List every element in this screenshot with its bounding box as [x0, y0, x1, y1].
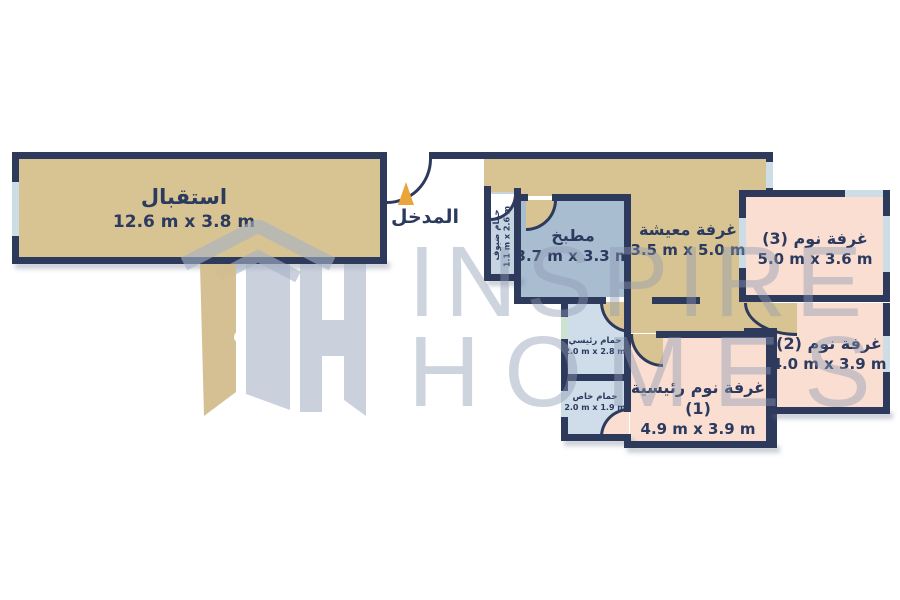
- room-name: غرفة نوم رئيسية (1): [628, 378, 768, 420]
- room-dims: 3.7 m x 3.3 m: [510, 247, 636, 267]
- window-segment: [845, 190, 885, 197]
- room-name: حمام خاص: [563, 392, 627, 403]
- room-dims: 12.6 m x 3.8 m: [84, 211, 284, 233]
- wall-segment: [766, 152, 773, 162]
- room-name: غرفة نوم (3): [745, 229, 885, 250]
- room-label-living: غرفة معيشة 3.5 m x 5.0 m: [626, 220, 750, 260]
- wall-segment: [739, 268, 746, 297]
- room-label-guest-bath-name: حمام ضيوف: [492, 193, 502, 277]
- room-label-bedroom2: غرفة نوم (2) 4.0 m x 3.9 m: [770, 334, 888, 374]
- room-label-master-bedroom: غرفة نوم رئيسية (1) 4.9 m x 3.9 m: [628, 378, 768, 439]
- room-label-master-bath: حمام رئيسي 2.0 m x 2.8 m: [563, 336, 627, 357]
- room-dims: 1.1 m x 2.6 m: [503, 206, 512, 267]
- room-label-private-bath: حمام خاص 2.0 m x 1.9 m: [563, 392, 627, 413]
- wall-segment: [12, 236, 19, 264]
- wall-segment: [624, 441, 777, 448]
- room-label-bedroom3: غرفة نوم (3) 5.0 m x 3.6 m: [745, 229, 885, 269]
- wall-segment: [739, 295, 890, 302]
- room-dims: 4.9 m x 3.9 m: [628, 420, 768, 440]
- entrance-arrow-icon: [398, 182, 414, 205]
- wall-segment: [429, 152, 772, 159]
- wall-segment: [652, 297, 700, 304]
- room-dims: 4.0 m x 3.9 m: [770, 355, 888, 375]
- wall-segment: [12, 152, 19, 182]
- room-name: غرفة معيشة: [626, 220, 750, 241]
- wall-segment: [552, 194, 630, 201]
- entrance-label: المدخل: [384, 206, 466, 228]
- room-name: حمام رئيسي: [563, 336, 627, 347]
- room-dims: 3.5 m x 5.0 m: [626, 241, 750, 261]
- wall-segment: [561, 374, 627, 381]
- room-name: مطبخ: [510, 226, 636, 247]
- room-dims: 5.0 m x 3.6 m: [745, 250, 885, 270]
- window-segment: [766, 162, 773, 188]
- wall-segment: [561, 434, 631, 441]
- room-name: حمام ضيوف: [492, 209, 502, 260]
- wall-segment: [770, 407, 890, 414]
- room-dims: 2.0 m x 2.8 m: [563, 347, 627, 357]
- wall-segment: [514, 194, 528, 201]
- room-name: استقبال: [84, 184, 284, 211]
- room-dims: 2.0 m x 1.9 m: [563, 403, 627, 413]
- room-label-guest-bath-dims: 1.1 m x 2.6 m: [503, 195, 512, 279]
- window-segment: [12, 182, 19, 236]
- wall-segment: [12, 152, 387, 159]
- room-label-reception: استقبال 12.6 m x 3.8 m: [84, 184, 284, 233]
- wall-segment: [484, 186, 491, 281]
- wall-segment: [12, 257, 387, 264]
- room-name: غرفة نوم (2): [770, 334, 888, 355]
- floor-plan-canvas: المدخل استقبال 12.6 m x 3.8 m مطبخ 3.7 m…: [0, 0, 900, 600]
- room-label-kitchen: مطبخ 3.7 m x 3.3 m: [510, 226, 636, 266]
- entrance-label-text: المدخل: [391, 206, 459, 228]
- wall-segment: [514, 297, 606, 304]
- wall-segment: [766, 188, 773, 197]
